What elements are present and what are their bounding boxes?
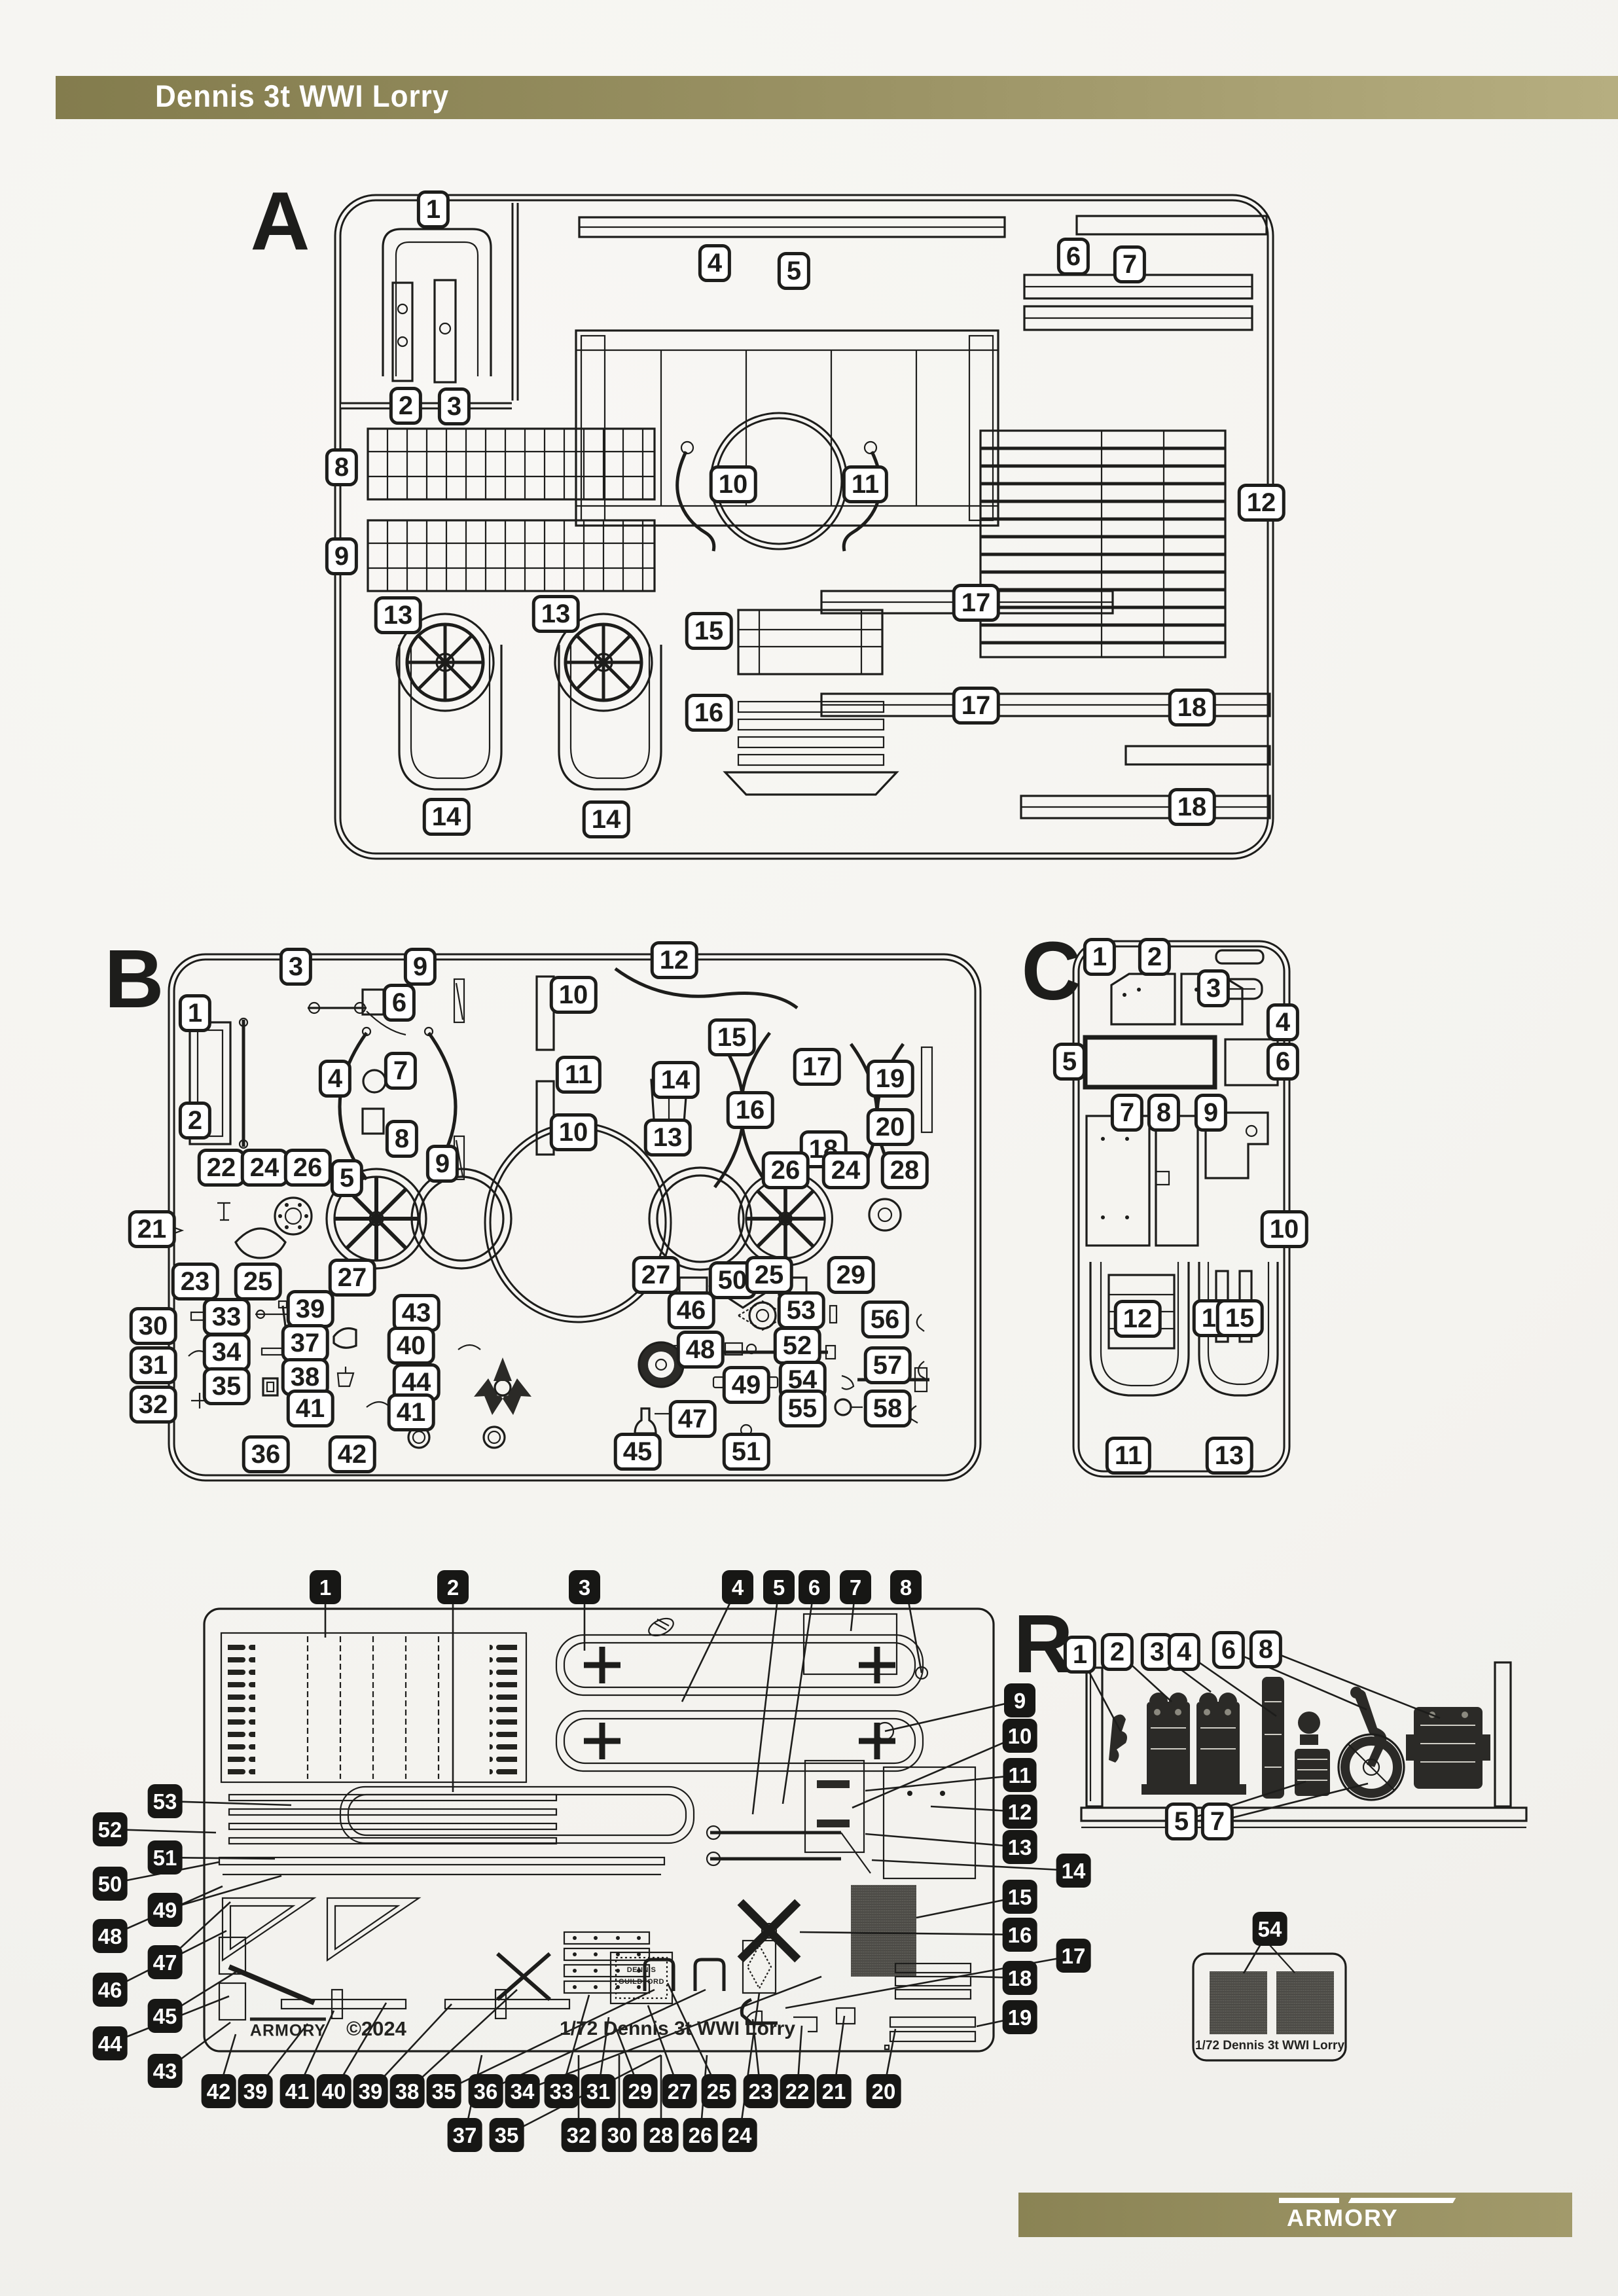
part-number-label-resin-8: 8	[1249, 1630, 1282, 1668]
part-number-label-resin-1: 1	[1064, 1636, 1096, 1674]
part-number-label-sprue-a-5: 5	[778, 252, 810, 290]
part-number-label-sprue-c-3: 3	[1197, 969, 1230, 1007]
part-number-label-sprue-b-25: 25	[234, 1263, 282, 1300]
part-number-label-sprue-b-11: 11	[556, 1056, 602, 1094]
section-letter-sprue-a: A	[251, 180, 310, 262]
part-number-label-sprue-b-16: 16	[727, 1091, 774, 1129]
part-number-label-pe-fret-10: 10	[1003, 1719, 1037, 1753]
part-number-label-pe-fret-30: 30	[602, 2118, 637, 2152]
armory-logo-bar-left	[1279, 2198, 1339, 2203]
part-number-label-sprue-a-14: 14	[423, 798, 471, 836]
part-number-label-pe-fret-53: 53	[148, 1784, 183, 1818]
part-number-label-sprue-a-3: 3	[438, 387, 471, 425]
part-number-label-pe-fret-36: 36	[469, 2074, 503, 2108]
part-number-label-pe-fret-27: 27	[662, 2074, 697, 2108]
part-number-label-sprue-a-14: 14	[583, 800, 630, 838]
part-number-label-sprue-b-56: 56	[861, 1300, 909, 1338]
part-number-label-pe-fret-40: 40	[317, 2074, 351, 2108]
part-number-label-sprue-b-12: 12	[651, 941, 698, 979]
part-number-label-sprue-b-24: 24	[822, 1151, 870, 1189]
part-number-label-pe-fret-19: 19	[1003, 2000, 1037, 2034]
part-number-label-pe-fret-37: 37	[448, 2118, 482, 2152]
part-number-label-sprue-a-18: 18	[1168, 788, 1216, 826]
part-number-label-sprue-b-32: 32	[130, 1386, 177, 1424]
part-number-label-sprue-b-57: 57	[864, 1346, 912, 1384]
part-number-label-resin-6: 6	[1212, 1631, 1245, 1669]
part-number-label-pe-54-54: 54	[1253, 1912, 1287, 1946]
part-number-label-pe-fret-52: 52	[93, 1812, 128, 1846]
part-number-label-sprue-a-18: 18	[1168, 689, 1216, 726]
part-number-label-sprue-b-19: 19	[867, 1060, 914, 1098]
part-number-label-sprue-b-20: 20	[867, 1108, 914, 1146]
part-number-label-sprue-a-8: 8	[325, 448, 358, 486]
pe-copyright: ©2024	[346, 2017, 406, 2041]
part-number-label-sprue-b-29: 29	[827, 1256, 875, 1294]
part-number-label-sprue-a-15: 15	[685, 612, 733, 650]
part-number-label-pe-fret-49: 49	[148, 1893, 183, 1927]
part-number-label-pe-fret-44: 44	[93, 2026, 128, 2060]
part-number-label-sprue-b-31: 31	[130, 1346, 177, 1384]
part-number-label-sprue-b-27: 27	[329, 1259, 376, 1297]
part-number-label-sprue-b-4: 4	[319, 1060, 351, 1098]
part-number-label-sprue-a-13: 13	[374, 596, 422, 634]
section-letter-sprue-c: C	[1022, 930, 1081, 1013]
footer-bar: ARMORY	[1018, 2193, 1572, 2237]
part-number-label-sprue-b-48: 48	[677, 1331, 725, 1369]
part-number-label-pe-fret-4: 4	[722, 1570, 753, 1604]
part-number-label-sprue-a-2: 2	[389, 387, 422, 425]
part-number-label-pe-fret-24: 24	[723, 2118, 757, 2152]
part-number-label-pe-fret-1: 1	[310, 1570, 341, 1604]
part-number-label-sprue-a-4: 4	[698, 244, 731, 282]
part-number-label-sprue-b-41: 41	[287, 1390, 334, 1427]
part-number-label-sprue-c-10: 10	[1261, 1210, 1308, 1248]
part-number-label-resin-7: 7	[1201, 1803, 1234, 1840]
part-number-label-sprue-b-34: 34	[203, 1333, 251, 1371]
part-number-label-pe-fret-35: 35	[427, 2074, 461, 2108]
part-number-label-pe-fret-5: 5	[763, 1570, 795, 1604]
part-number-label-sprue-a-11: 11	[842, 465, 888, 503]
part-number-label-pe-fret-16: 16	[1003, 1918, 1037, 1952]
part-number-label-pe-fret-45: 45	[148, 1999, 183, 2033]
part-number-label-pe-fret-20: 20	[867, 2074, 901, 2108]
part-number-label-pe-fret-29: 29	[623, 2074, 658, 2108]
part-number-label-pe-fret-23: 23	[744, 2074, 778, 2108]
part-number-label-sprue-b-49: 49	[723, 1366, 770, 1404]
part-number-label-sprue-b-10: 10	[550, 1113, 598, 1151]
part-number-label-pe-fret-41: 41	[280, 2074, 315, 2108]
part-number-label-pe-fret-31: 31	[581, 2074, 616, 2108]
part-number-label-sprue-a-12: 12	[1238, 484, 1285, 522]
part-number-label-pe-fret-7: 7	[840, 1570, 871, 1604]
part-number-label-pe-fret-6: 6	[799, 1570, 830, 1604]
part-number-label-pe-fret-48: 48	[93, 1919, 128, 1953]
part-number-label-sprue-b-14: 14	[652, 1061, 700, 1099]
part-number-label-resin-5: 5	[1165, 1803, 1198, 1840]
part-number-label-sprue-b-42: 42	[329, 1435, 376, 1473]
part-number-label-sprue-b-52: 52	[774, 1327, 821, 1365]
part-number-label-sprue-a-9: 9	[325, 537, 358, 575]
part-number-label-sprue-b-26: 26	[284, 1149, 332, 1187]
part-number-label-sprue-b-17: 17	[793, 1048, 841, 1086]
armory-logo-bar-right	[1348, 2198, 1456, 2203]
part-number-label-pe-fret-3: 3	[569, 1570, 600, 1604]
part-number-label-pe-fret-43: 43	[148, 2054, 183, 2088]
part-number-label-pe-fret-8: 8	[890, 1570, 922, 1604]
part-number-label-pe-fret-39: 39	[238, 2074, 273, 2108]
part-number-label-pe-fret-11: 11	[1003, 1758, 1037, 1792]
page-title: Dennis 3t WWI Lorry	[155, 79, 449, 115]
part-number-label-pe-fret-25: 25	[702, 2074, 736, 2108]
part-number-label-sprue-b-6: 6	[383, 984, 416, 1022]
part-number-label-sprue-b-22: 22	[198, 1149, 245, 1187]
part-number-label-sprue-a-10: 10	[710, 465, 757, 503]
radiator-brand-line1: DENNIS	[627, 1966, 656, 1974]
part-number-label-sprue-b-1: 1	[179, 994, 211, 1032]
part-number-label-pe-fret-22: 22	[780, 2074, 815, 2108]
part-number-label-pe-fret-47: 47	[148, 1945, 183, 1979]
pe-logo-text: ARMORY	[250, 2018, 326, 2041]
part-number-label-sprue-b-24: 24	[241, 1149, 289, 1187]
part-number-label-pe-fret-34: 34	[505, 2074, 540, 2108]
part-number-label-sprue-c-13: 13	[1206, 1437, 1253, 1475]
part-number-label-sprue-b-35: 35	[203, 1367, 251, 1405]
part-number-label-pe-fret-38: 38	[390, 2074, 425, 2108]
part-number-label-pe-fret-39: 39	[353, 2074, 388, 2108]
part-number-label-pe-fret-50: 50	[93, 1867, 128, 1901]
part-number-label-sprue-c-5: 5	[1053, 1043, 1086, 1081]
part-number-label-sprue-b-26: 26	[762, 1151, 810, 1189]
part-number-label-pe-fret-15: 15	[1003, 1880, 1037, 1914]
part-number-label-pe-fret-42: 42	[202, 2074, 236, 2108]
part-number-label-sprue-b-10: 10	[550, 976, 598, 1014]
part-number-label-sprue-b-23: 23	[171, 1263, 219, 1300]
part-number-label-pe-fret-13: 13	[1003, 1830, 1037, 1864]
part-number-label-sprue-b-36: 36	[242, 1435, 290, 1473]
part-number-label-pe-fret-46: 46	[93, 1973, 128, 2007]
part-number-label-pe-fret-18: 18	[1003, 1961, 1037, 1995]
part-number-label-sprue-b-46: 46	[668, 1291, 715, 1329]
part-number-label-sprue-b-27: 27	[632, 1256, 680, 1294]
part-number-label-resin-2: 2	[1101, 1633, 1134, 1671]
part-number-label-sprue-b-3: 3	[279, 948, 312, 986]
part-number-label-sprue-b-9: 9	[426, 1145, 459, 1183]
part-number-label-pe-fret-12: 12	[1003, 1795, 1037, 1829]
part-number-label-sprue-a-1: 1	[417, 190, 450, 228]
part-number-label-pe-fret-51: 51	[148, 1840, 183, 1874]
part-number-label-sprue-b-8: 8	[386, 1120, 418, 1158]
part-number-label-sprue-b-45: 45	[614, 1433, 662, 1471]
part-number-label-sprue-a-6: 6	[1057, 238, 1090, 276]
part-number-label-sprue-b-55: 55	[779, 1390, 827, 1427]
part-number-label-sprue-a-7: 7	[1113, 245, 1146, 283]
part-number-label-sprue-b-21: 21	[128, 1210, 176, 1248]
part-number-label-pe-fret-32: 32	[562, 2118, 596, 2152]
section-letter-sprue-b: B	[105, 938, 164, 1020]
part-number-label-sprue-a-13: 13	[532, 595, 580, 633]
part-number-label-sprue-c-8: 8	[1147, 1094, 1180, 1132]
header-bar: Dennis 3t WWI Lorry	[56, 76, 1618, 119]
armory-logo: ARMORY	[1287, 2198, 1457, 2232]
part-number-label-sprue-b-53: 53	[778, 1291, 825, 1329]
part-number-label-sprue-b-37: 37	[281, 1324, 329, 1362]
part-number-label-sprue-a-17: 17	[952, 687, 1000, 725]
part-number-label-sprue-b-5: 5	[331, 1159, 363, 1197]
part-number-label-pe-fret-17: 17	[1056, 1939, 1091, 1973]
part-number-label-pe-fret-26: 26	[683, 2118, 718, 2152]
part-number-label-sprue-b-28: 28	[881, 1151, 929, 1189]
part-number-label-pe-fret-28: 28	[644, 2118, 679, 2152]
part-number-label-pe-fret-35: 35	[490, 2118, 524, 2152]
part-number-label-pe-fret-2: 2	[437, 1570, 469, 1604]
part-number-label-sprue-b-30: 30	[130, 1307, 177, 1345]
part-number-label-sprue-b-40: 40	[387, 1327, 435, 1365]
armory-logo-text: ARMORY	[1287, 2204, 1399, 2232]
part-number-label-pe-fret-21: 21	[817, 2074, 852, 2108]
part-number-label-sprue-a-17: 17	[952, 584, 1000, 622]
part-number-label-sprue-c-2: 2	[1138, 938, 1171, 976]
radiator-brand-line2: GUILDFORD	[619, 1978, 664, 1986]
part-number-label-sprue-b-9: 9	[404, 948, 437, 986]
part-number-label-sprue-b-39: 39	[287, 1290, 334, 1328]
part-number-label-sprue-c-12: 12	[1114, 1300, 1162, 1338]
part-number-label-sprue-b-7: 7	[384, 1052, 417, 1090]
part-number-label-sprue-b-41: 41	[387, 1393, 435, 1431]
part-number-label-sprue-c-4: 4	[1267, 1003, 1299, 1041]
part-number-label-sprue-b-58: 58	[864, 1390, 912, 1427]
part-number-label-sprue-c-7: 7	[1111, 1094, 1143, 1132]
part-number-label-sprue-c-6: 6	[1267, 1043, 1299, 1081]
part-number-label-sprue-b-47: 47	[669, 1400, 717, 1438]
pe-scale-title: 1/72 Dennis 3t WWI Lorry	[560, 2018, 795, 2040]
part-number-label-resin-4: 4	[1168, 1633, 1200, 1671]
part-number-label-sprue-c-1: 1	[1083, 938, 1116, 976]
part-number-label-sprue-b-51: 51	[723, 1433, 770, 1471]
part-number-label-pe-fret-14: 14	[1056, 1854, 1091, 1888]
part-number-label-sprue-a-16: 16	[685, 694, 733, 732]
part-number-label-sprue-c-15: 15	[1216, 1299, 1264, 1337]
part-number-label-sprue-b-13: 13	[644, 1119, 692, 1157]
part-number-label-sprue-c-11: 11	[1106, 1437, 1151, 1475]
part-number-label-sprue-b-33: 33	[203, 1298, 251, 1336]
part-number-label-sprue-b-2: 2	[179, 1102, 211, 1139]
part-number-label-pe-fret-9: 9	[1004, 1683, 1035, 1717]
instruction-sheet-page: Dennis 3t WWI Lorry ARMORY A145672381011…	[0, 0, 1618, 2296]
pe54-caption: 1/72 Dennis 3t WWI Lorry	[1195, 2039, 1344, 2053]
part-number-label-pe-fret-33: 33	[545, 2074, 579, 2108]
part-number-label-sprue-b-15: 15	[708, 1018, 756, 1056]
part-number-label-sprue-c-9: 9	[1195, 1094, 1227, 1132]
part-number-label-sprue-b-25: 25	[746, 1256, 793, 1294]
